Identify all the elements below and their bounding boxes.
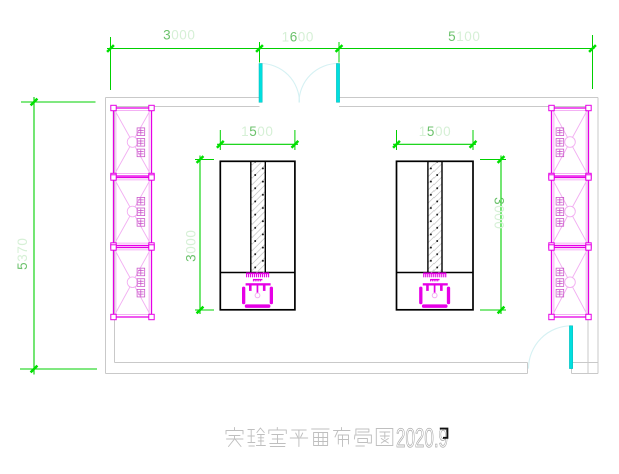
svg-text:0: 0 [171,28,179,43]
svg-text:3: 3 [163,28,171,43]
svg-text:0: 0 [298,30,306,45]
svg-text:0: 0 [492,205,507,213]
svg-text:0: 0 [15,238,30,246]
svg-text:0: 0 [184,246,199,254]
svg-text:0: 0 [492,213,507,221]
svg-text:0: 0 [179,28,187,43]
svg-text:0: 0 [435,124,443,139]
svg-text:0: 0 [472,29,480,44]
svg-text:0: 0 [492,221,507,229]
svg-text:0: 0 [184,230,199,238]
svg-text:0: 0 [443,124,451,139]
svg-text:2020.9: 2020.9 [396,423,448,453]
svg-text:6: 6 [290,30,298,45]
svg-text:5: 5 [448,29,456,44]
svg-text:0: 0 [257,124,265,139]
svg-text:1: 1 [282,30,290,45]
svg-text:0: 0 [265,124,273,139]
svg-text:1: 1 [419,124,427,139]
svg-text:1: 1 [456,29,464,44]
svg-text:3: 3 [15,254,30,262]
svg-text:7: 7 [15,246,30,254]
svg-text:5: 5 [249,124,257,139]
svg-text:5: 5 [427,124,435,139]
svg-text:1: 1 [241,124,249,139]
svg-text:3: 3 [184,254,199,262]
svg-text:0: 0 [464,29,472,44]
svg-text:3: 3 [492,197,507,205]
svg-text:0: 0 [184,238,199,246]
svg-text:5: 5 [15,262,30,270]
svg-text:0: 0 [187,28,195,43]
svg-text:0: 0 [306,30,314,45]
